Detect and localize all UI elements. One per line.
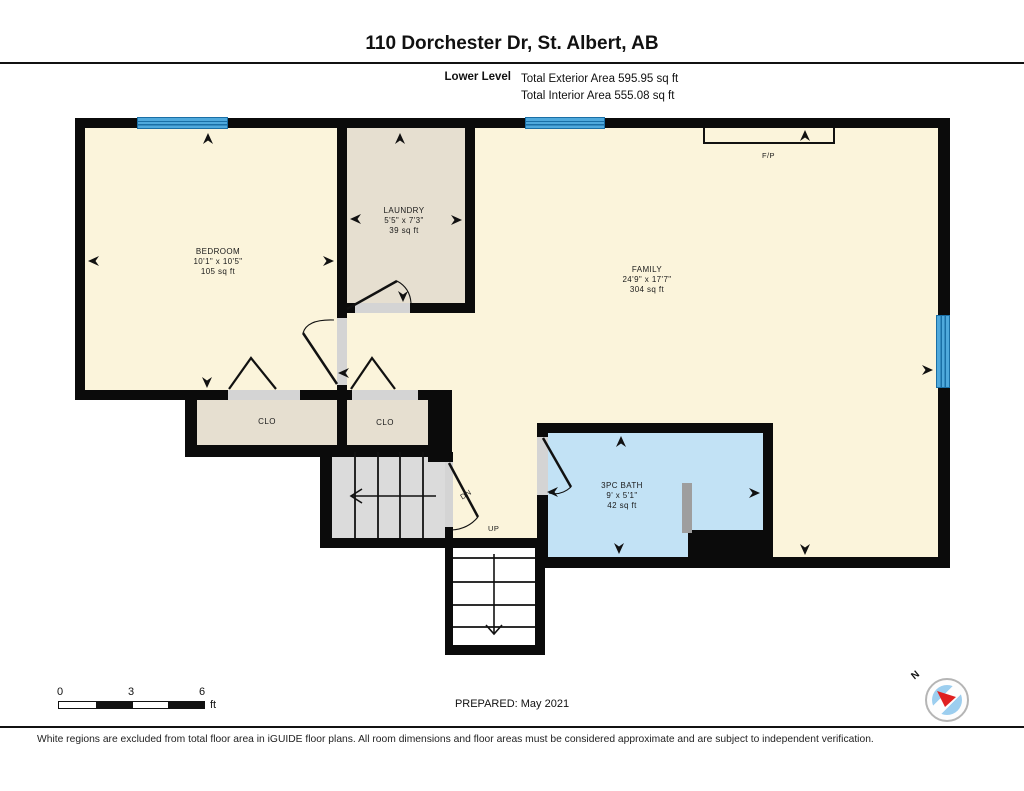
laundry-dimensions: 5'5" x 7'3" xyxy=(384,216,425,226)
bedroom-dimensions: 10'1" x 10'5" xyxy=(193,257,242,267)
arrow-up-bath xyxy=(616,436,626,447)
bath-area: 42 sq ft xyxy=(601,501,643,511)
scale-tick-3: 3 xyxy=(128,686,134,698)
bedroom-area: 105 sq ft xyxy=(193,267,242,277)
arrow-down-laundry-door xyxy=(398,291,408,302)
arrow-left-laundry xyxy=(350,214,361,224)
compass-dial xyxy=(932,685,962,715)
arrow-right-bath xyxy=(749,488,760,498)
bath-name: 3PC BATH xyxy=(601,481,643,491)
family-label: FAMILY 24'9" x 17'7" 304 sq ft xyxy=(622,265,671,295)
dimension-arrows xyxy=(88,130,933,555)
disclaimer-text: White regions are excluded from total fl… xyxy=(37,734,874,745)
arrow-right-laundry xyxy=(451,215,462,225)
arrow-right-family-window xyxy=(922,365,933,375)
arrow-up-fireplace xyxy=(800,130,810,141)
closet2-label: CLO xyxy=(376,418,394,428)
compass-needle xyxy=(932,685,962,715)
arrow-down-bath xyxy=(614,543,624,554)
bath-dimensions: 9' x 5'1" xyxy=(601,491,643,501)
arrow-up-laundry xyxy=(395,133,405,144)
prepared-date: PREPARED: May 2021 xyxy=(0,698,1024,710)
arrow-up-bedroom xyxy=(203,133,213,144)
bedroom-name: BEDROOM xyxy=(193,247,242,257)
arrow-left-bedroom xyxy=(88,256,99,266)
stairs-up-label: UP xyxy=(488,524,499,533)
plan-linework xyxy=(0,0,1024,791)
family-area: 304 sq ft xyxy=(622,285,671,295)
closet1-bifold-door xyxy=(229,358,276,389)
family-name: FAMILY xyxy=(622,265,671,275)
stairs-down-steps xyxy=(355,452,423,538)
closet2-bifold-door xyxy=(351,358,395,389)
arrow-down-bedroom xyxy=(202,377,212,388)
bath-door xyxy=(543,438,571,494)
laundry-name: LAUNDRY xyxy=(384,206,425,216)
arrow-right-bedroom xyxy=(323,256,334,266)
stairs-up-direction-arrow xyxy=(486,554,502,634)
arrow-left-hall xyxy=(338,368,349,378)
floorplan-page: 110 Dorchester Dr, St. Albert, AB Lower … xyxy=(0,0,1024,791)
bedroom-door xyxy=(303,320,337,384)
family-dimensions: 24'9" x 17'7" xyxy=(622,275,671,285)
footer-divider xyxy=(0,726,1024,728)
fireplace-label: F/P xyxy=(762,151,775,160)
scale-tick-6: 6 xyxy=(199,686,205,698)
arrow-down-family xyxy=(800,544,810,555)
scale-tick-0: 0 xyxy=(57,686,63,698)
laundry-label: LAUNDRY 5'5" x 7'3" 39 sq ft xyxy=(384,206,425,236)
laundry-area: 39 sq ft xyxy=(384,226,425,236)
bath-label: 3PC BATH 9' x 5'1" 42 sq ft xyxy=(601,481,643,511)
bedroom-label: BEDROOM 10'1" x 10'5" 105 sq ft xyxy=(193,247,242,277)
compass-icon xyxy=(925,678,969,722)
closet1-label: CLO xyxy=(258,417,276,427)
arrow-left-bath-door xyxy=(547,487,558,497)
